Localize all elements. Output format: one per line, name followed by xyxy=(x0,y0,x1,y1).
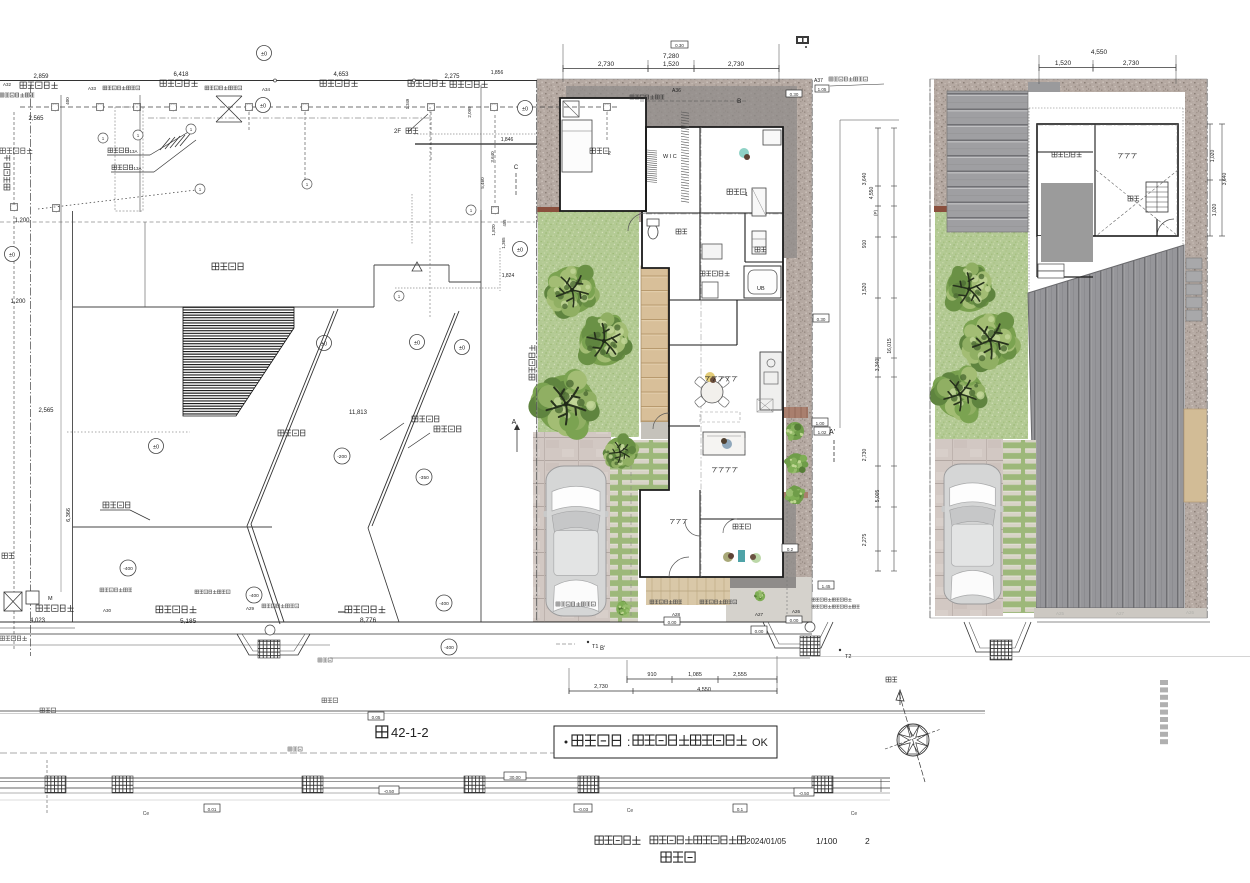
svg-text:1,856: 1,856 xyxy=(491,70,504,76)
svg-text:A27: A27 xyxy=(1116,611,1125,616)
svg-text:1,200: 1,200 xyxy=(10,299,26,305)
svg-text:1,200: 1,200 xyxy=(14,218,30,224)
svg-text:A32: A32 xyxy=(3,82,12,87)
svg-text:3,640: 3,640 xyxy=(1222,173,1228,186)
svg-text:30.00: 30.00 xyxy=(509,775,521,780)
svg-text:2,275: 2,275 xyxy=(862,534,868,547)
svg-text:1,520: 1,520 xyxy=(862,283,868,296)
svg-text:3,640: 3,640 xyxy=(490,151,495,163)
svg-text:2,565: 2,565 xyxy=(28,116,44,122)
svg-text:A29: A29 xyxy=(246,606,255,611)
svg-text:4,550: 4,550 xyxy=(869,187,875,200)
svg-text:5,005: 5,005 xyxy=(875,490,881,503)
svg-text:A28: A28 xyxy=(672,612,681,617)
svg-text:A30: A30 xyxy=(103,608,112,613)
svg-text:-400: -400 xyxy=(249,593,259,599)
svg-text:42-1-2: 42-1-2 xyxy=(391,725,429,740)
svg-text:2,565: 2,565 xyxy=(38,408,54,414)
svg-text:2,730: 2,730 xyxy=(598,61,615,68)
svg-text:-0.50: -0.50 xyxy=(799,791,810,796)
svg-text:910: 910 xyxy=(647,672,656,678)
svg-text:±0: ±0 xyxy=(522,107,528,113)
svg-text:2,099: 2,099 xyxy=(467,106,472,118)
svg-text:W I C: W I C xyxy=(663,154,677,160)
svg-text:1,846: 1,846 xyxy=(501,137,514,143)
svg-text:2: 2 xyxy=(865,836,870,846)
svg-text::: : xyxy=(627,735,630,749)
svg-text:-400: -400 xyxy=(123,566,133,572)
svg-text:1,349: 1,349 xyxy=(405,98,410,109)
svg-text:0.01: 0.01 xyxy=(208,807,217,812)
svg-text:(P): (P) xyxy=(873,210,878,217)
svg-text:A: A xyxy=(512,419,517,426)
svg-text:2024/01/05: 2024/01/05 xyxy=(746,837,787,846)
svg-text:3,640: 3,640 xyxy=(862,173,868,186)
svg-text:0.30: 0.30 xyxy=(675,43,684,48)
svg-text:B: B xyxy=(737,98,741,105)
svg-text:-400: -400 xyxy=(439,601,449,607)
svg-text:2,555: 2,555 xyxy=(733,672,747,678)
svg-text:0.00: 0.00 xyxy=(755,629,764,634)
svg-text:-200: -200 xyxy=(337,454,347,460)
svg-text:-0.50: -0.50 xyxy=(384,789,395,794)
svg-text:0.2: 0.2 xyxy=(787,547,794,552)
svg-text:5,185: 5,185 xyxy=(180,618,197,625)
svg-text:-13A: -13A xyxy=(132,166,142,171)
svg-text:2,859: 2,859 xyxy=(33,74,49,80)
svg-text:2,730: 2,730 xyxy=(862,449,868,462)
svg-text:1,020: 1,020 xyxy=(1212,204,1218,217)
svg-text:0.30: 0.30 xyxy=(790,92,799,97)
svg-text:1.00: 1.00 xyxy=(816,421,825,426)
svg-text:1.05: 1.05 xyxy=(818,87,827,92)
svg-text:A37: A37 xyxy=(814,78,823,84)
svg-text:2,730: 2,730 xyxy=(594,684,608,690)
svg-text:±0: ±0 xyxy=(414,341,420,347)
svg-text:1,520: 1,520 xyxy=(1055,60,1072,67)
svg-text:7,280: 7,280 xyxy=(663,53,680,60)
svg-text:2: 2 xyxy=(608,151,611,157)
svg-text:455: 455 xyxy=(502,219,507,227)
svg-text:±0: ±0 xyxy=(9,253,15,259)
svg-text:1: 1 xyxy=(745,192,748,198)
svg-text:T2: T2 xyxy=(845,654,851,660)
svg-text:A25: A25 xyxy=(1056,611,1065,616)
svg-text:0.00: 0.00 xyxy=(790,618,799,623)
svg-text:±0: ±0 xyxy=(153,445,159,451)
svg-text:1,365: 1,365 xyxy=(501,237,506,249)
svg-text:A27: A27 xyxy=(755,612,764,617)
svg-text:OK: OK xyxy=(752,737,769,749)
svg-text:0.05: 0.05 xyxy=(372,715,381,720)
svg-text:4,023: 4,023 xyxy=(30,618,46,624)
svg-text:B': B' xyxy=(600,646,605,652)
svg-text:1,085: 1,085 xyxy=(688,672,702,678)
svg-text:M: M xyxy=(48,596,53,602)
svg-text:A26: A26 xyxy=(1186,610,1195,615)
svg-text:UB: UB xyxy=(757,286,765,292)
svg-text:0.30: 0.30 xyxy=(817,317,826,322)
svg-text:1,020: 1,020 xyxy=(1210,150,1216,163)
svg-text:4,550: 4,550 xyxy=(697,687,711,693)
svg-text:-400: -400 xyxy=(444,645,454,651)
svg-text:910: 910 xyxy=(862,240,868,249)
svg-text:400: 400 xyxy=(65,97,70,105)
svg-text:11,813: 11,813 xyxy=(349,410,368,416)
svg-text:4,550: 4,550 xyxy=(1091,49,1108,56)
svg-text:±0: ±0 xyxy=(261,52,267,58)
svg-text:1.02: 1.02 xyxy=(818,430,827,435)
svg-text:±0: ±0 xyxy=(260,104,266,110)
svg-text:Ce: Ce xyxy=(627,808,634,814)
svg-text:±0: ±0 xyxy=(517,248,523,254)
svg-text:0.00: 0.00 xyxy=(668,620,677,625)
svg-text:1,820: 1,820 xyxy=(491,224,496,236)
svg-text:8,776: 8,776 xyxy=(360,617,377,624)
svg-text:2,275: 2,275 xyxy=(444,74,460,80)
svg-text:2,730: 2,730 xyxy=(1123,60,1140,67)
svg-text:A34: A34 xyxy=(262,87,271,92)
svg-text:T1: T1 xyxy=(592,644,598,650)
svg-text:6,418: 6,418 xyxy=(173,72,189,78)
svg-text:A36: A36 xyxy=(672,88,681,94)
svg-text:-0.03: -0.03 xyxy=(578,807,589,812)
svg-text:3,340: 3,340 xyxy=(875,359,881,372)
svg-text:-350: -350 xyxy=(419,475,429,481)
svg-text:4,653: 4,653 xyxy=(333,72,349,78)
svg-text:1.45: 1.45 xyxy=(822,584,831,589)
svg-text:6,366: 6,366 xyxy=(66,508,72,522)
svg-text:0.1: 0.1 xyxy=(737,807,744,812)
svg-text:1,824: 1,824 xyxy=(502,273,515,279)
svg-text:-13A: -13A xyxy=(128,149,138,154)
svg-text:A26: A26 xyxy=(792,609,801,614)
svg-text:Ce: Ce xyxy=(143,811,150,817)
svg-text:±0: ±0 xyxy=(459,346,465,352)
svg-text:1,520: 1,520 xyxy=(663,61,680,68)
svg-text:16,015: 16,015 xyxy=(887,338,893,354)
svg-text:2F: 2F xyxy=(394,129,401,135)
svg-text:C: C xyxy=(514,165,519,171)
svg-text:2,730: 2,730 xyxy=(728,61,745,68)
svg-text:A33: A33 xyxy=(88,86,97,91)
svg-text:A': A' xyxy=(829,429,835,436)
svg-text:Ce: Ce xyxy=(851,811,858,817)
svg-text:1/100: 1/100 xyxy=(816,836,838,846)
